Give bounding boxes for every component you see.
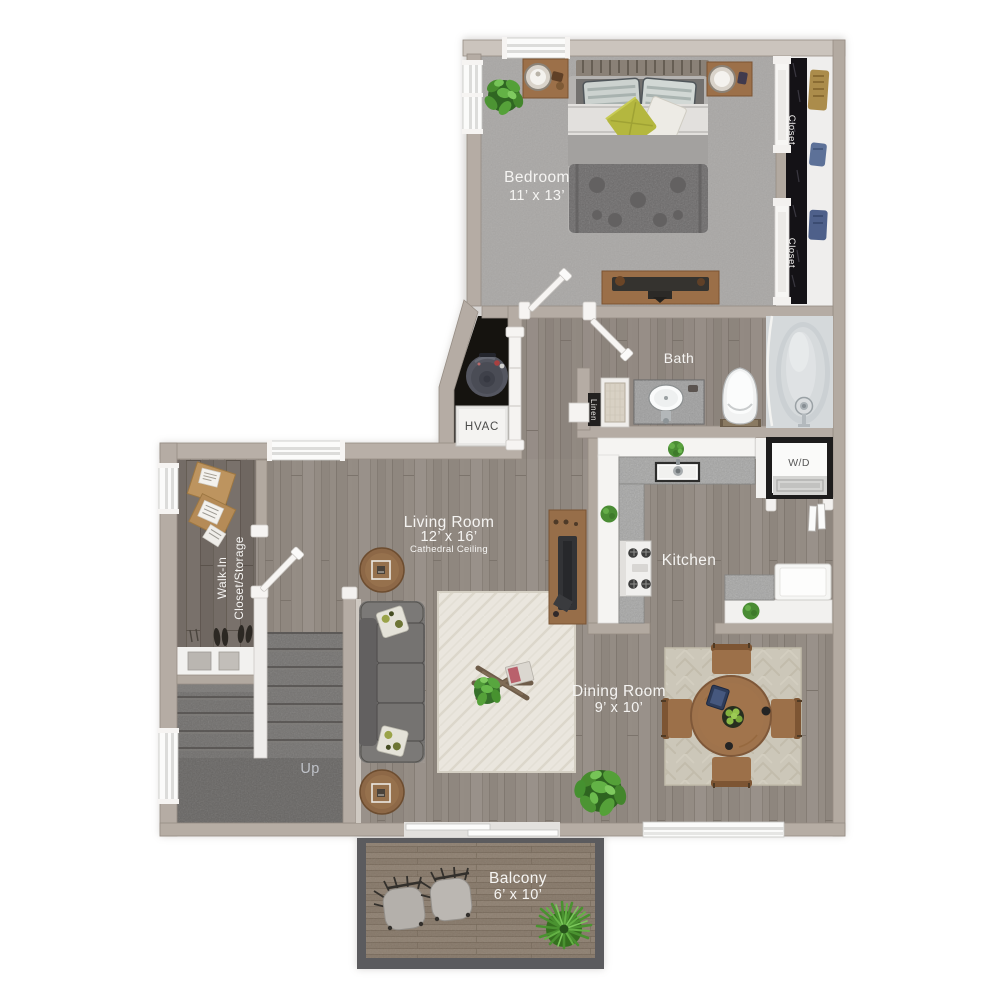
svg-text:Bath: Bath xyxy=(664,350,694,366)
svg-text:Closet: Closet xyxy=(786,115,797,146)
svg-text:Cathedral Ceiling: Cathedral Ceiling xyxy=(410,544,488,555)
svg-text:Closet: Closet xyxy=(786,238,797,269)
svg-text:6’ x 10’: 6’ x 10’ xyxy=(494,887,543,903)
svg-text:12’ x 16’: 12’ x 16’ xyxy=(420,529,477,545)
svg-text:Dining Room: Dining Room xyxy=(572,683,666,700)
svg-text:Up: Up xyxy=(300,761,319,777)
svg-text:Linen: Linen xyxy=(589,399,598,421)
svg-text:Balcony: Balcony xyxy=(489,870,547,887)
svg-text:11’ x 13’: 11’ x 13’ xyxy=(509,188,565,204)
svg-text:Walk-In: Walk-In xyxy=(215,557,229,599)
svg-text:Closet/Storage: Closet/Storage xyxy=(232,536,246,620)
svg-text:9’ x 10’: 9’ x 10’ xyxy=(595,700,644,716)
svg-text:HVAC: HVAC xyxy=(465,421,499,433)
svg-text:Bedroom: Bedroom xyxy=(504,169,570,186)
svg-text:Kitchen: Kitchen xyxy=(662,552,717,569)
svg-text:W/D: W/D xyxy=(788,457,810,469)
